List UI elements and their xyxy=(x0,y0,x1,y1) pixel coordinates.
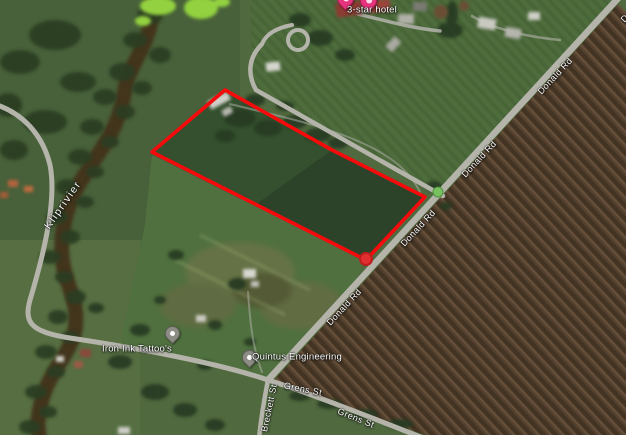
boundary-overlay xyxy=(0,0,626,435)
boundary-vertex-marker[interactable] xyxy=(360,253,372,265)
satellite-map[interactable]: 3-star hotel Kliprivier Donald Rd Donald… xyxy=(0,0,626,435)
boundary-polygon xyxy=(152,90,425,260)
